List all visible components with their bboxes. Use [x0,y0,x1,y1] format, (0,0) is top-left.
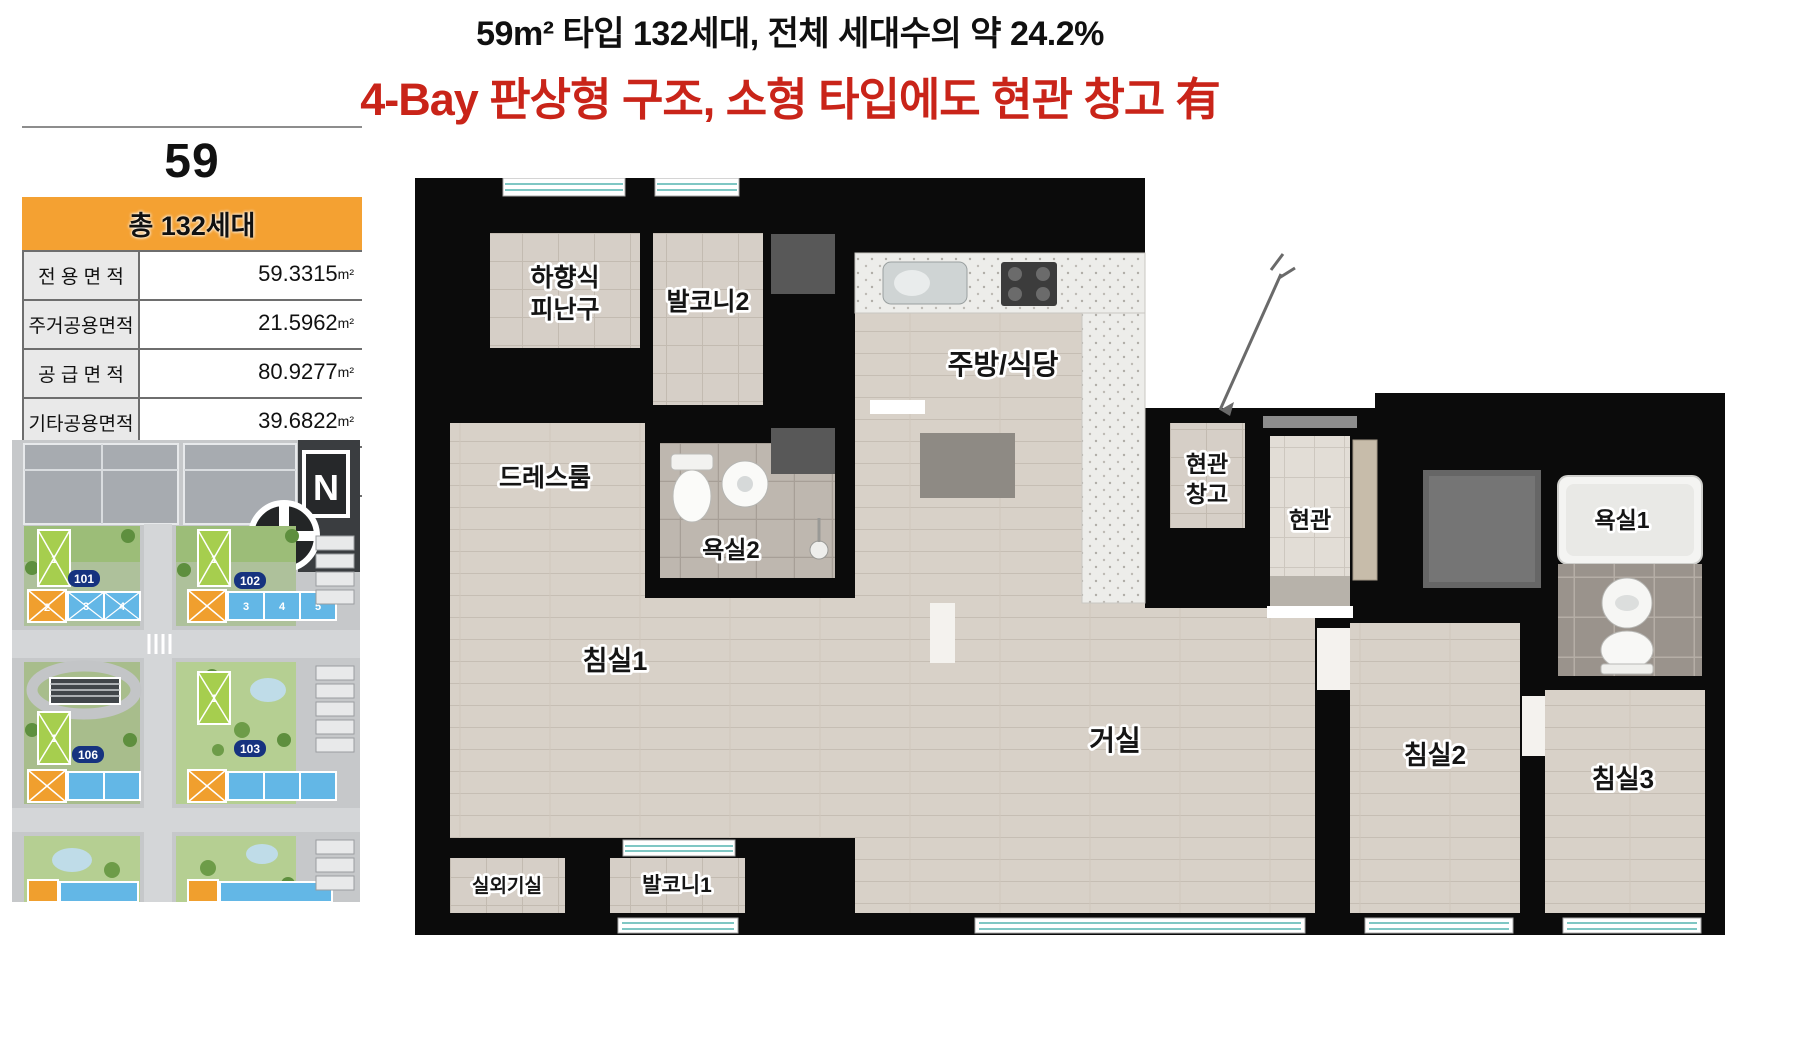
room-label-bath1: 욕실1 [1594,507,1649,533]
value-number: 80.9277 [258,359,338,384]
room-label-dressroom: 드레스룸 [499,464,591,492]
value-number: 21.5962 [258,310,338,335]
block-label-106: 106 [78,748,98,762]
burner [1036,267,1050,281]
total-households-bar: 총 132세대 [22,197,362,250]
site-map-graphic: N 1 101 2 [12,440,360,902]
kitchen-sink-basin [894,270,930,296]
row-label: 주거공용면적 [22,301,140,348]
room-label-entry-storage-line2: 창고 [1186,481,1228,507]
toilet [1601,631,1653,669]
washbasin-drain [1615,595,1639,611]
building-number: 3 [83,601,89,613]
header-subtitle: 59m² 타입 132세대, 전체 세대수의 약 24.2% [90,6,1490,55]
building-number: 3 [243,601,249,613]
value-unit: m² [338,364,354,380]
building-number: 1 [211,554,217,566]
floor-plan-graphic: 하향식 피난구 발코니2 주방/식당 드레스룸 욕실2 현관 창고 현관 욕실1… [415,178,1725,935]
header: 59m² 타입 132세대, 전체 세대수의 약 24.2% 4-Bay 판상형… [90,6,1490,128]
door-opening [1522,696,1545,756]
burner [1036,287,1050,301]
room-label-entry-storage-line1: 현관 [1186,451,1228,477]
value-unit: m² [338,315,354,331]
type-number: 59 [22,128,362,197]
block-label-101: 101 [74,572,94,586]
room-label-entry: 현관 [1289,507,1331,533]
compass-n-label: N [313,467,339,508]
site-map: N 1 101 2 [12,440,360,902]
table-row: 주거공용면적 21.5962m² [22,299,362,348]
window [623,840,735,856]
room-label-bath2: 욕실2 [702,537,760,564]
value-number: 59.3315 [258,261,338,286]
room-label-outdoor-unit: 실외기실 [472,875,542,897]
table-row: 기타공용면적 39.6822m² [22,397,362,446]
toilet-tank [671,454,713,470]
balcony2-floor [653,233,763,405]
row-value: 21.5962m² [140,301,362,348]
room-label-bedroom1: 침실1 [583,646,648,676]
room-label-kitchen: 주방/식당 [948,349,1059,380]
brochure-page: { "header": { "line1": "59m² 타입 132세대, 전… [0,0,1800,1044]
building-number: 1 [211,693,217,705]
duct-box [771,428,835,474]
door-threshold [1267,606,1353,618]
floor-plan: 하향식 피난구 발코니2 주방/식당 드레스룸 욕실2 현관 창고 현관 욕실1… [415,178,1725,935]
room-label-escape-line2: 피난구 [530,296,599,324]
block-label-102: 102 [240,574,260,588]
value-unit: m² [338,413,354,429]
table-row: 공 급 면 적 80.9277m² [22,348,362,397]
window [1563,918,1701,933]
table-row: 전 용 면 적 59.3315m² [22,250,362,299]
row-label: 공 급 면 적 [22,350,140,397]
toilet-tank [1601,664,1653,674]
window [975,918,1305,933]
living-floor [1145,608,1315,913]
entry-mat [1270,576,1350,608]
burner [1008,287,1022,301]
row-value: 80.9277m² [140,350,362,397]
header-title: 4-Bay 판상형 구조, 소형 타입에도 현관 창고 有 [90,63,1490,128]
toilet [673,470,711,522]
bedroom3-floor [1545,690,1705,913]
row-value: 39.6822m² [140,399,362,446]
window [503,178,625,196]
shoe-cabinet [1353,440,1377,580]
cooktop [1001,262,1057,306]
row-label: 기타공용면적 [22,399,140,446]
bedroom1-floor [450,598,925,838]
room-label-balcony2: 발코니2 [667,288,750,316]
entrance-arrow [1220,254,1295,416]
window [655,178,739,196]
duct-box [771,234,835,294]
door-opening [1317,628,1350,690]
door-opening [930,603,955,663]
room-label-living: 거실 [1089,725,1141,756]
burner [1008,267,1022,281]
kitchen-counter-leg [1082,313,1145,603]
room-label-balcony1: 발코니1 [642,874,712,897]
room-label-escape-line1: 하향식 [530,264,599,292]
shower-head [810,541,828,559]
elevator-shaft-inner [1429,476,1535,582]
row-label: 전 용 면 적 [22,252,140,299]
washbasin-drain [737,476,753,492]
value-unit: m² [338,266,354,282]
dining-rug [920,433,1015,498]
value-number: 39.6822 [258,408,338,433]
window [618,918,738,933]
building-number: 1 [51,733,57,745]
room-label-bedroom2: 침실2 [1404,740,1466,770]
building-number: 4 [279,601,286,613]
dressroom-floor [450,423,645,598]
row-value: 59.3315m² [140,252,362,299]
entry-canopy [1263,416,1357,428]
building-number: 2 [44,602,50,614]
building-number: 1 [51,554,57,566]
door-threshold [870,400,925,414]
room-label-bedroom3: 침실3 [1592,764,1654,794]
building-number: 4 [119,601,126,613]
window [1365,918,1513,933]
block-label-103: 103 [240,742,260,756]
